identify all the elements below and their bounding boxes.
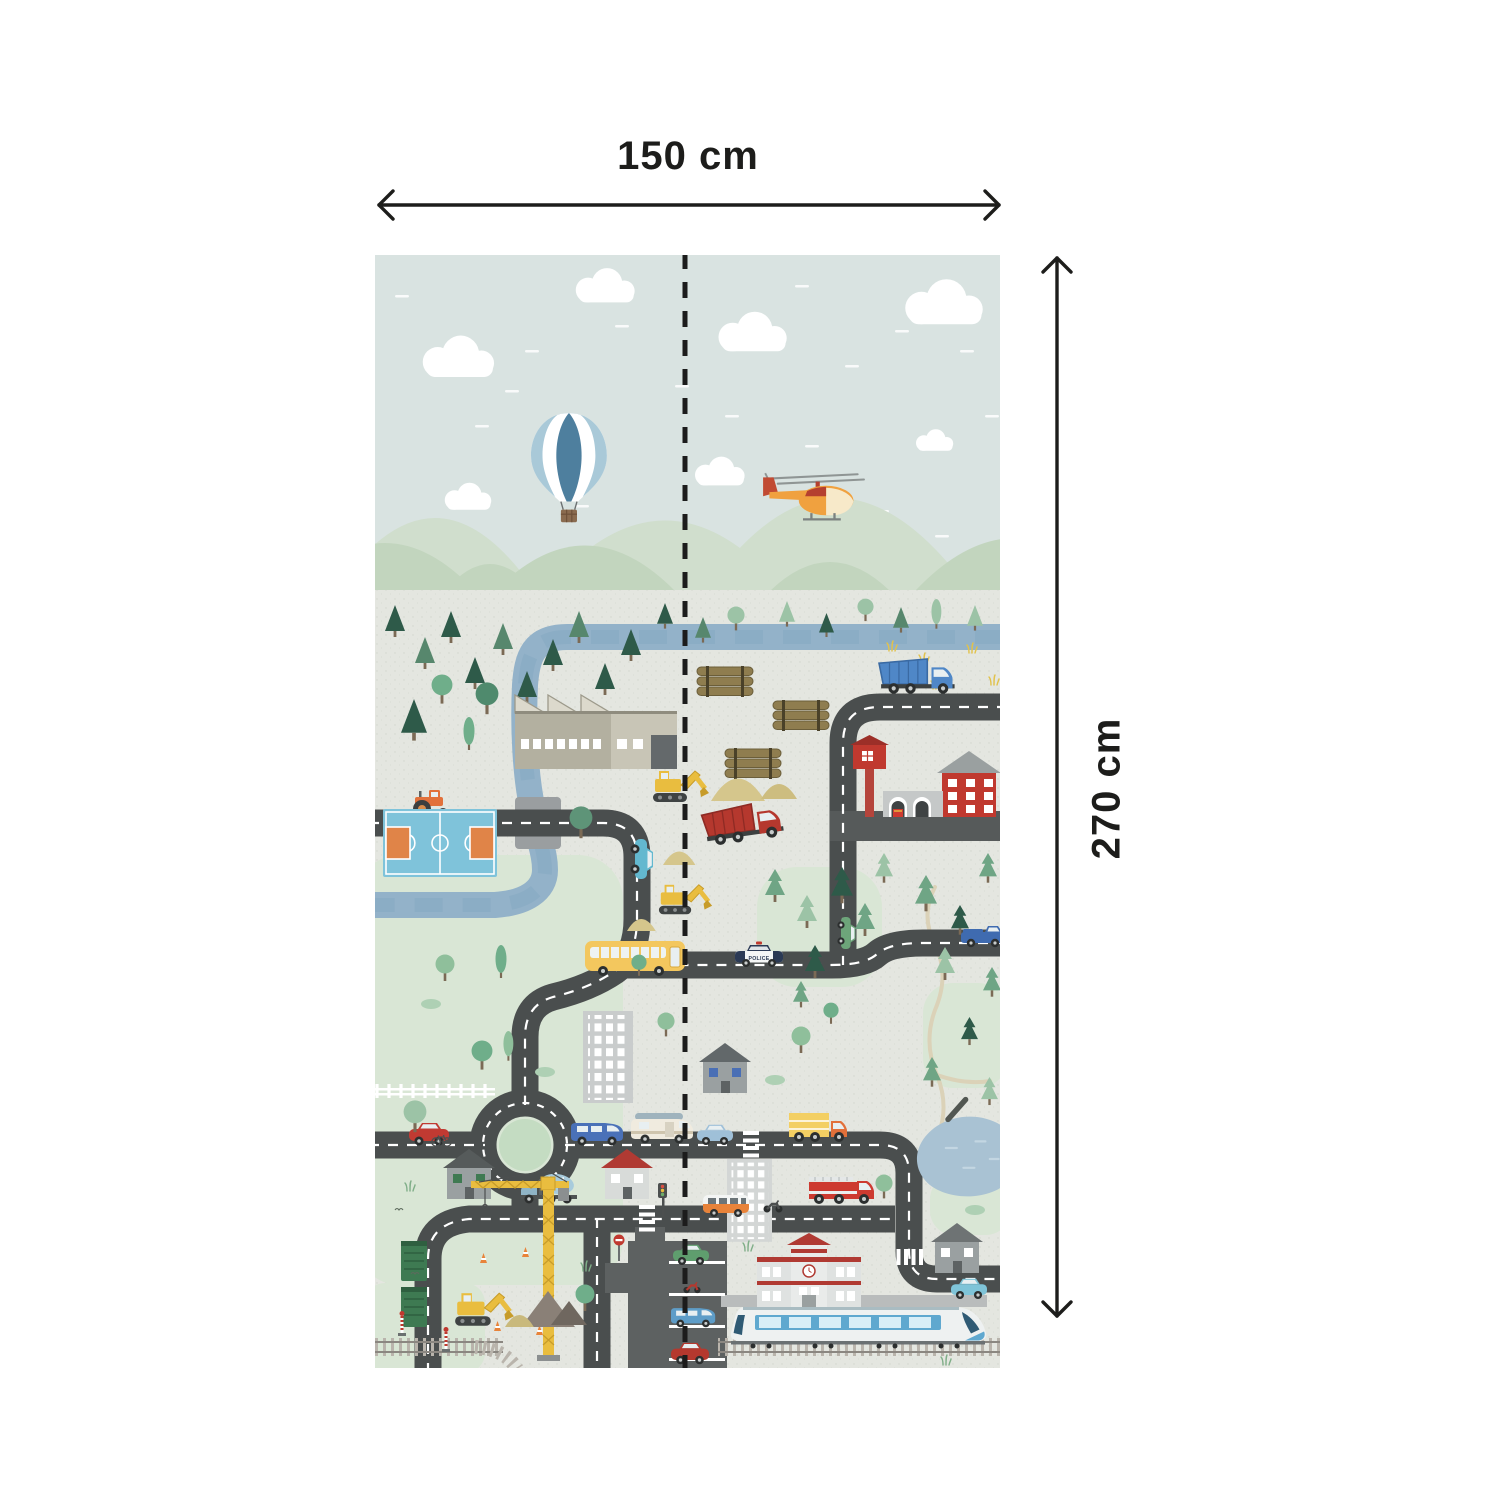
bush (421, 999, 441, 1009)
office-building (583, 1011, 633, 1103)
width-dimension-arrow (372, 186, 1006, 224)
width-dimension-label: 150 cm (538, 134, 838, 179)
log-pile (773, 700, 829, 731)
log-pile (725, 748, 781, 779)
playmat-wallpaper-mural: POLICE (375, 255, 1000, 1368)
bush (765, 1075, 785, 1085)
height-dimension-label: 270 cm (1085, 639, 1130, 939)
basketball-court (383, 809, 497, 877)
bush (535, 1067, 555, 1077)
product-dimension-diagram: 150 cm 270 cm (0, 0, 1500, 1500)
bush (965, 1205, 985, 1215)
train (731, 1307, 986, 1349)
height-dimension-arrow (1038, 250, 1076, 1324)
roundabout-center (499, 1119, 551, 1171)
log-pile (697, 666, 753, 697)
